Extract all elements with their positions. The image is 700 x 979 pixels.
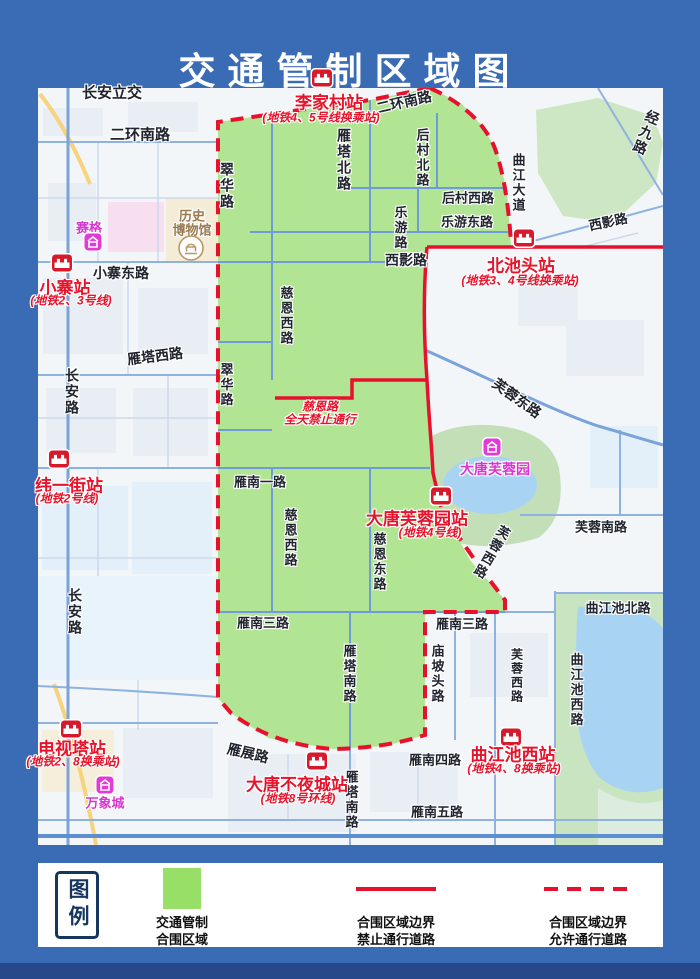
metro-station-line: (地铁3、4号线换乘站)	[461, 272, 578, 289]
road-label: 西影路	[385, 250, 427, 270]
road-label: 曲江池西路	[567, 653, 586, 728]
metro-station-line: (地铁4号线)	[399, 524, 462, 541]
legend: 图例 交通管制 合围区域 合围区域边界 禁止通行道路 合围区域边界 允许通行道路	[38, 863, 663, 947]
road-label: 曲江大道	[509, 153, 528, 213]
road-label: 庙坡头路	[428, 644, 447, 704]
road-label: 芙蓉南路	[575, 517, 627, 536]
metro-station-icon	[305, 751, 329, 772]
metro-station-icon	[429, 486, 453, 507]
road-label: 翠华路	[217, 363, 236, 408]
road-label: 雁塔南路	[340, 644, 359, 704]
legend-zone-swatch	[163, 868, 201, 909]
road-label: 雁南四路	[409, 750, 461, 769]
metro-station-line: (地铁8号环线)	[261, 790, 336, 807]
metro-station-icon	[50, 253, 74, 274]
metro-station-icon	[512, 228, 536, 249]
metro-station-line: (地铁4、8换乘站)	[467, 760, 560, 777]
legend-allowed-label-2: 允许通行道路	[500, 929, 676, 948]
legend-dashed-line	[544, 887, 632, 891]
road-label: 乐游路	[391, 206, 410, 251]
road-label: 小寨东路	[93, 263, 149, 283]
road-label: 慈恩西路	[281, 508, 300, 568]
road-label: 后村西路	[442, 188, 494, 207]
legend-zone-label-2: 合围区域	[136, 929, 228, 948]
legend-item-allowed: 合围区域边界 允许通行道路	[500, 863, 676, 947]
road-label: 雁塔北路	[334, 128, 354, 192]
metro-station-line: (地铁2、8换乘站)	[26, 753, 119, 770]
notice-text: 全天禁止通行	[284, 411, 356, 428]
road-label: 曲江池北路	[585, 598, 650, 617]
road-label: 长安路	[65, 588, 85, 636]
road-label: 芙蓉西路	[509, 648, 526, 704]
traffic-control-poster: 交通管制区域图	[0, 0, 700, 979]
mall-icon	[95, 775, 116, 796]
road-label: 雁南三路	[436, 614, 488, 633]
legend-forbidden-label-2: 禁止通行道路	[308, 929, 484, 948]
park-icon	[482, 437, 503, 458]
road-label: 雁南三路	[237, 613, 289, 632]
landmark-label: 大唐芙蓉园	[460, 459, 530, 479]
bottom-band	[0, 963, 700, 979]
metro-station-icon	[310, 68, 334, 89]
road-label: 慈恩东路	[370, 532, 389, 592]
metro-station-line: (地铁2、3号线)	[30, 292, 111, 309]
road-label: 翠华路	[217, 162, 237, 210]
road-label: 慈恩西路	[277, 286, 296, 346]
museum-icon	[178, 235, 204, 261]
map-canvas	[38, 88, 663, 845]
legend-item-forbidden: 合围区域边界 禁止通行道路	[308, 863, 484, 947]
map-area: 长安立交二环南路二环南路雁塔北路后村北路经九路曲江大道后村西路乐游东路乐游路西影…	[38, 88, 663, 845]
mall-icon	[83, 232, 104, 253]
metro-station-icon	[47, 449, 71, 470]
metro-station-line: (地铁4、5号线换乘站)	[262, 109, 379, 126]
road-label: 长安立交	[82, 82, 142, 103]
legend-title: 图例	[55, 871, 99, 939]
road-label: 乐游东路	[441, 212, 493, 231]
legend-item-zone: 交通管制 合围区域	[136, 863, 228, 947]
road-label: 长安路	[62, 368, 82, 416]
road-label: 后村北路	[413, 128, 432, 188]
road-label: 二环南路	[110, 124, 170, 145]
legend-solid-line	[356, 887, 436, 891]
road-label: 雁南一路	[234, 472, 286, 491]
metro-station-line: (地铁2号线)	[36, 490, 99, 507]
road-label: 雁南五路	[411, 802, 463, 821]
